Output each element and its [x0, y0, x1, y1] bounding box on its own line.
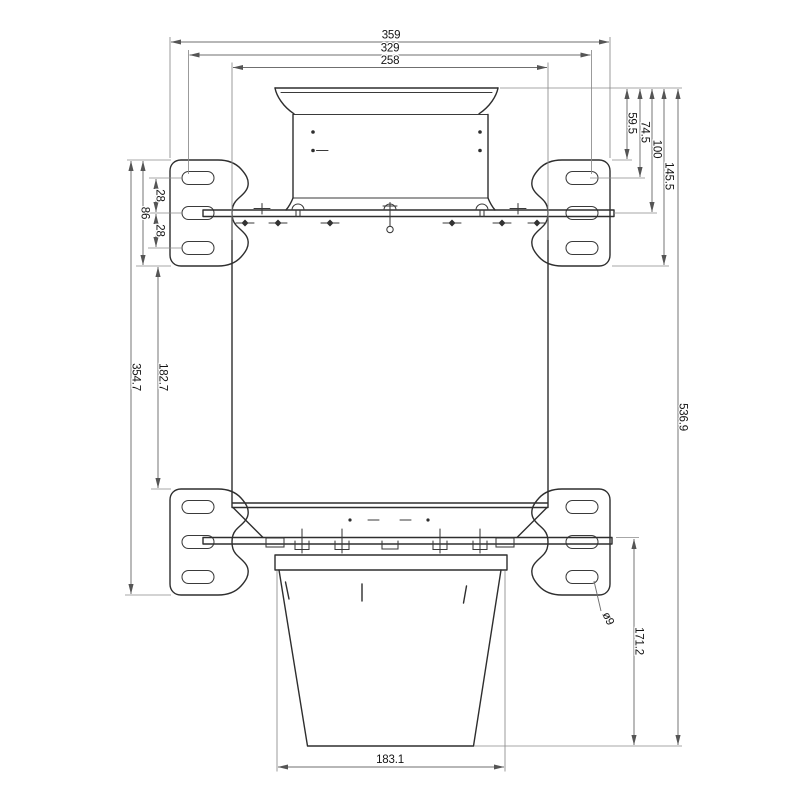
dim-width-overall: 359 [382, 30, 401, 42]
horn-flange [275, 88, 498, 114]
lower-body-marks [348, 518, 429, 521]
dim-offset-slot-top: 74.5 [639, 121, 651, 143]
bracket-bottom-left [170, 489, 248, 595]
bracket-top-right [532, 160, 610, 266]
upper-body [286, 115, 495, 211]
main-body [232, 217, 548, 538]
dim-height-overall: 536.9 [677, 403, 689, 431]
dim-offset-rail: 100 [651, 140, 663, 159]
bucket-rim [275, 555, 507, 570]
neck-taper [233, 508, 547, 538]
dim-hole-diameter: ø9 [600, 610, 616, 627]
dim-bracket-gap: 182.7 [157, 363, 169, 391]
dim-bucket-height: 171.2 [633, 627, 645, 655]
dim-slot-pitch-lower: 28 [154, 224, 166, 236]
dim-bucket-width: 183.1 [376, 754, 404, 766]
rail-bolt-marks [236, 220, 546, 227]
dim-offset-bracket-top: 59.5 [626, 112, 638, 134]
bucket-cone [279, 570, 501, 746]
dim-bracket-span: 354.7 [130, 363, 142, 391]
dim-slot-pitch-upper: 28 [154, 189, 166, 201]
dim-width-slot-centers: 329 [381, 43, 400, 55]
leader-hole-dia [594, 581, 601, 611]
bucket [275, 555, 507, 746]
dim-bracket-height: 86 [139, 207, 151, 219]
drawing-canvas: 359 329 258 59.5 74.5 100 145.5 536.9 28… [0, 0, 800, 800]
upper-body-holes [311, 130, 482, 152]
dim-offset-bracket-bottom: 145.5 [663, 162, 675, 190]
dim-width-body: 258 [381, 55, 400, 67]
upper-rail-bolts [236, 203, 546, 233]
dimension-drawing: 359 329 258 59.5 74.5 100 145.5 536.9 28… [0, 0, 800, 800]
lower-rail [203, 529, 612, 553]
lower-rail-clamps [266, 529, 514, 553]
dimensions: 359 329 258 59.5 74.5 100 145.5 536.9 28… [125, 30, 689, 772]
upper-rail [203, 203, 614, 233]
bucket-ticks [286, 582, 467, 603]
bracket-bottom-right [532, 489, 610, 595]
